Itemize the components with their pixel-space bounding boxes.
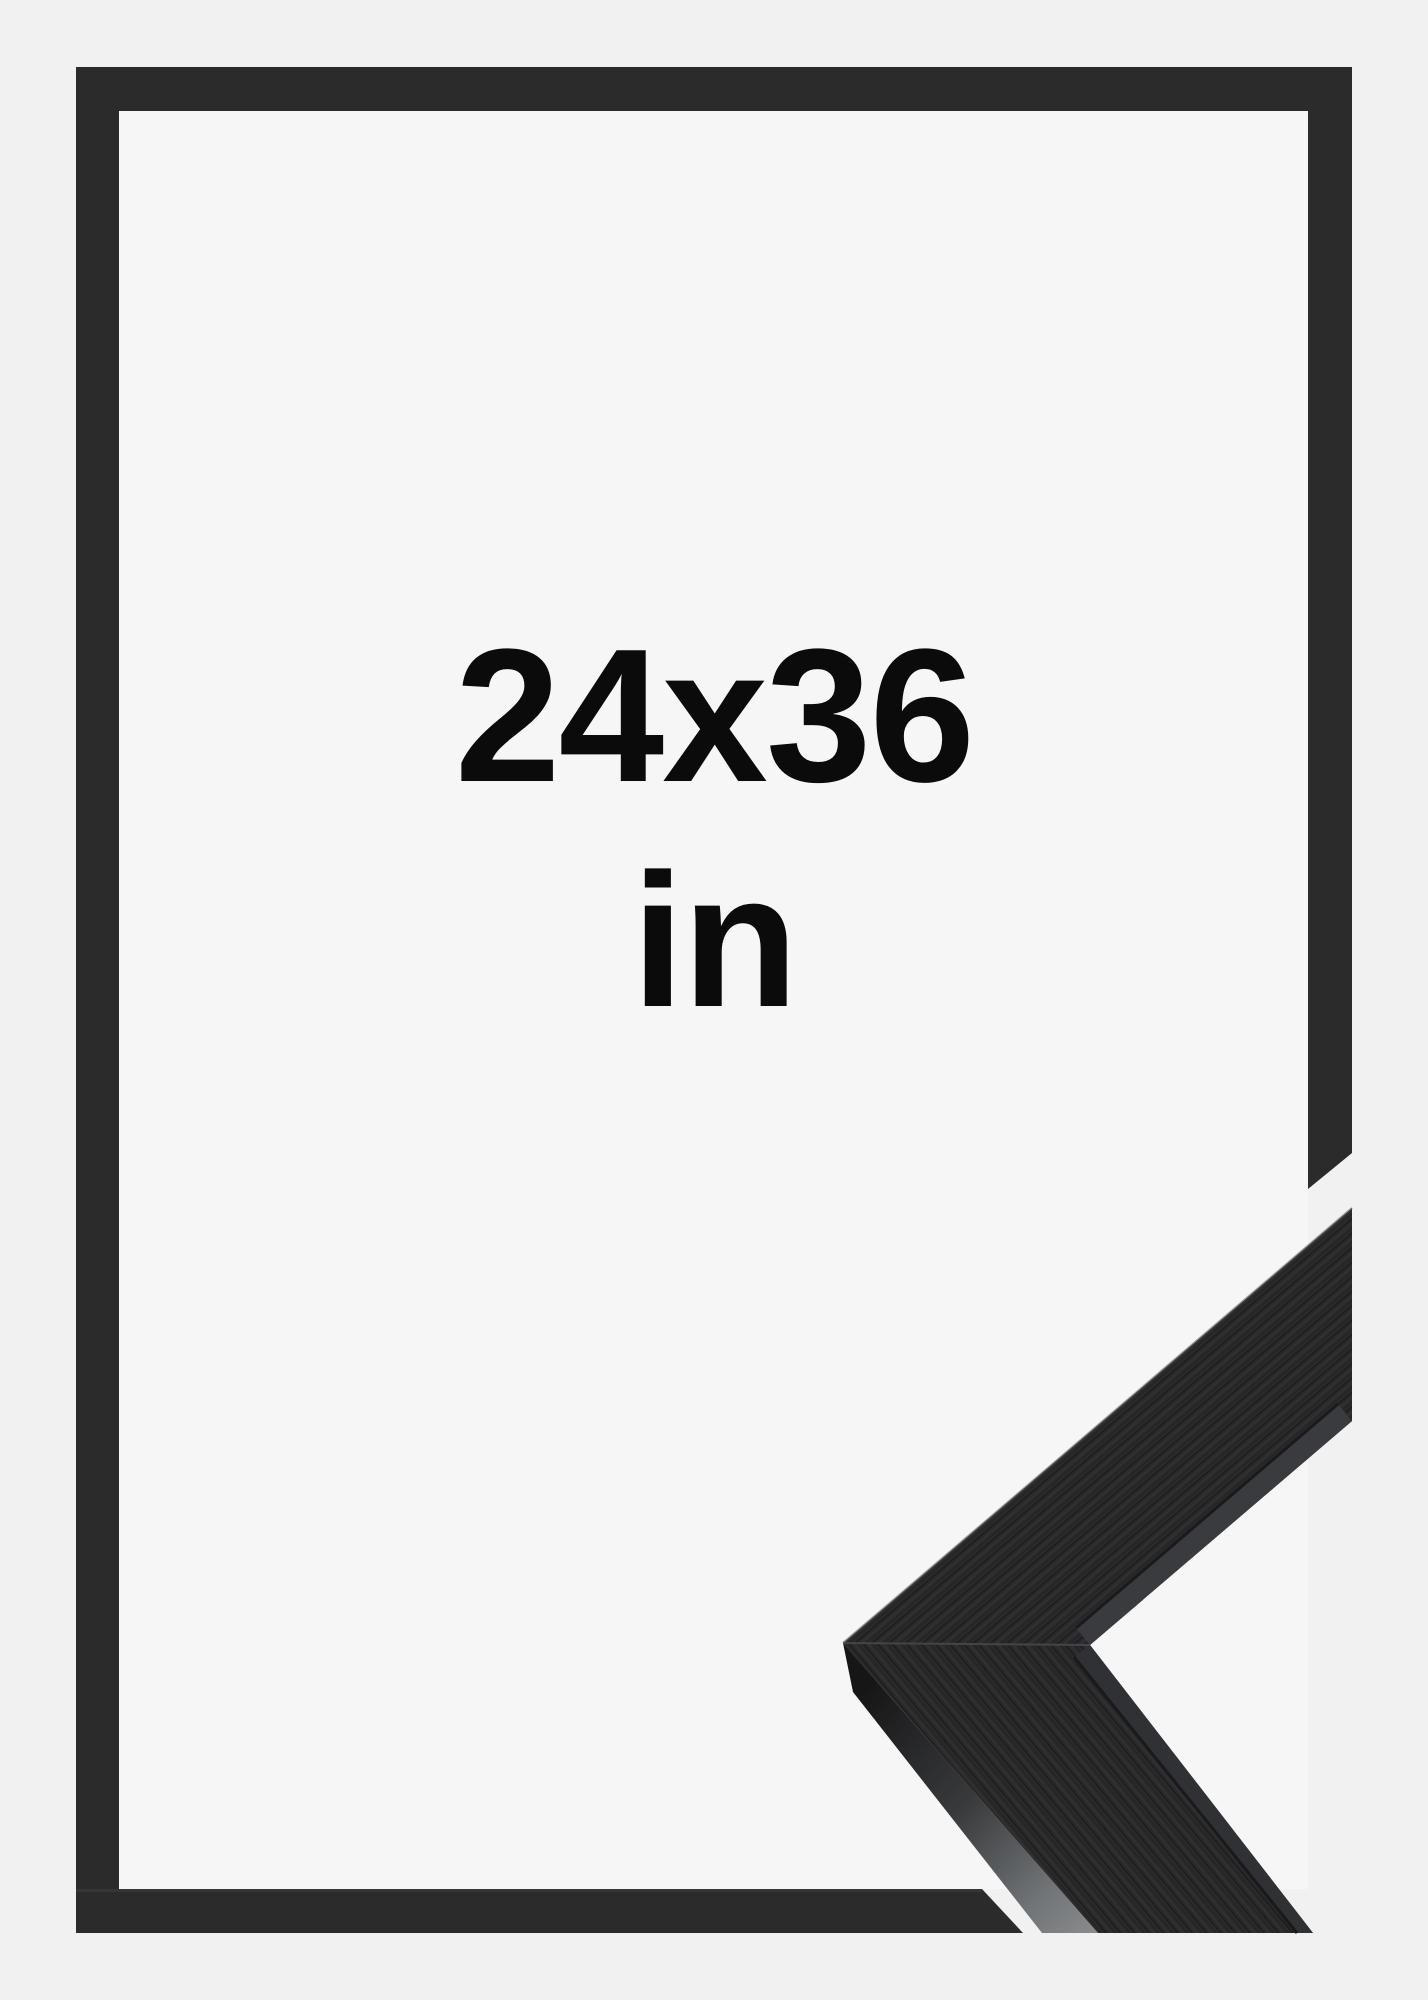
size-unit-text: in [76, 829, 1352, 1054]
frame-bottom-bar [76, 1889, 1023, 1933]
size-label: 24x36 in [76, 604, 1352, 1054]
size-dimensions-text: 24x36 [76, 604, 1352, 829]
frame-top-bar [76, 67, 1352, 111]
frame-bottom-bar-highlight [76, 1889, 982, 1892]
product-photo: 24x36 in [0, 0, 1428, 2000]
